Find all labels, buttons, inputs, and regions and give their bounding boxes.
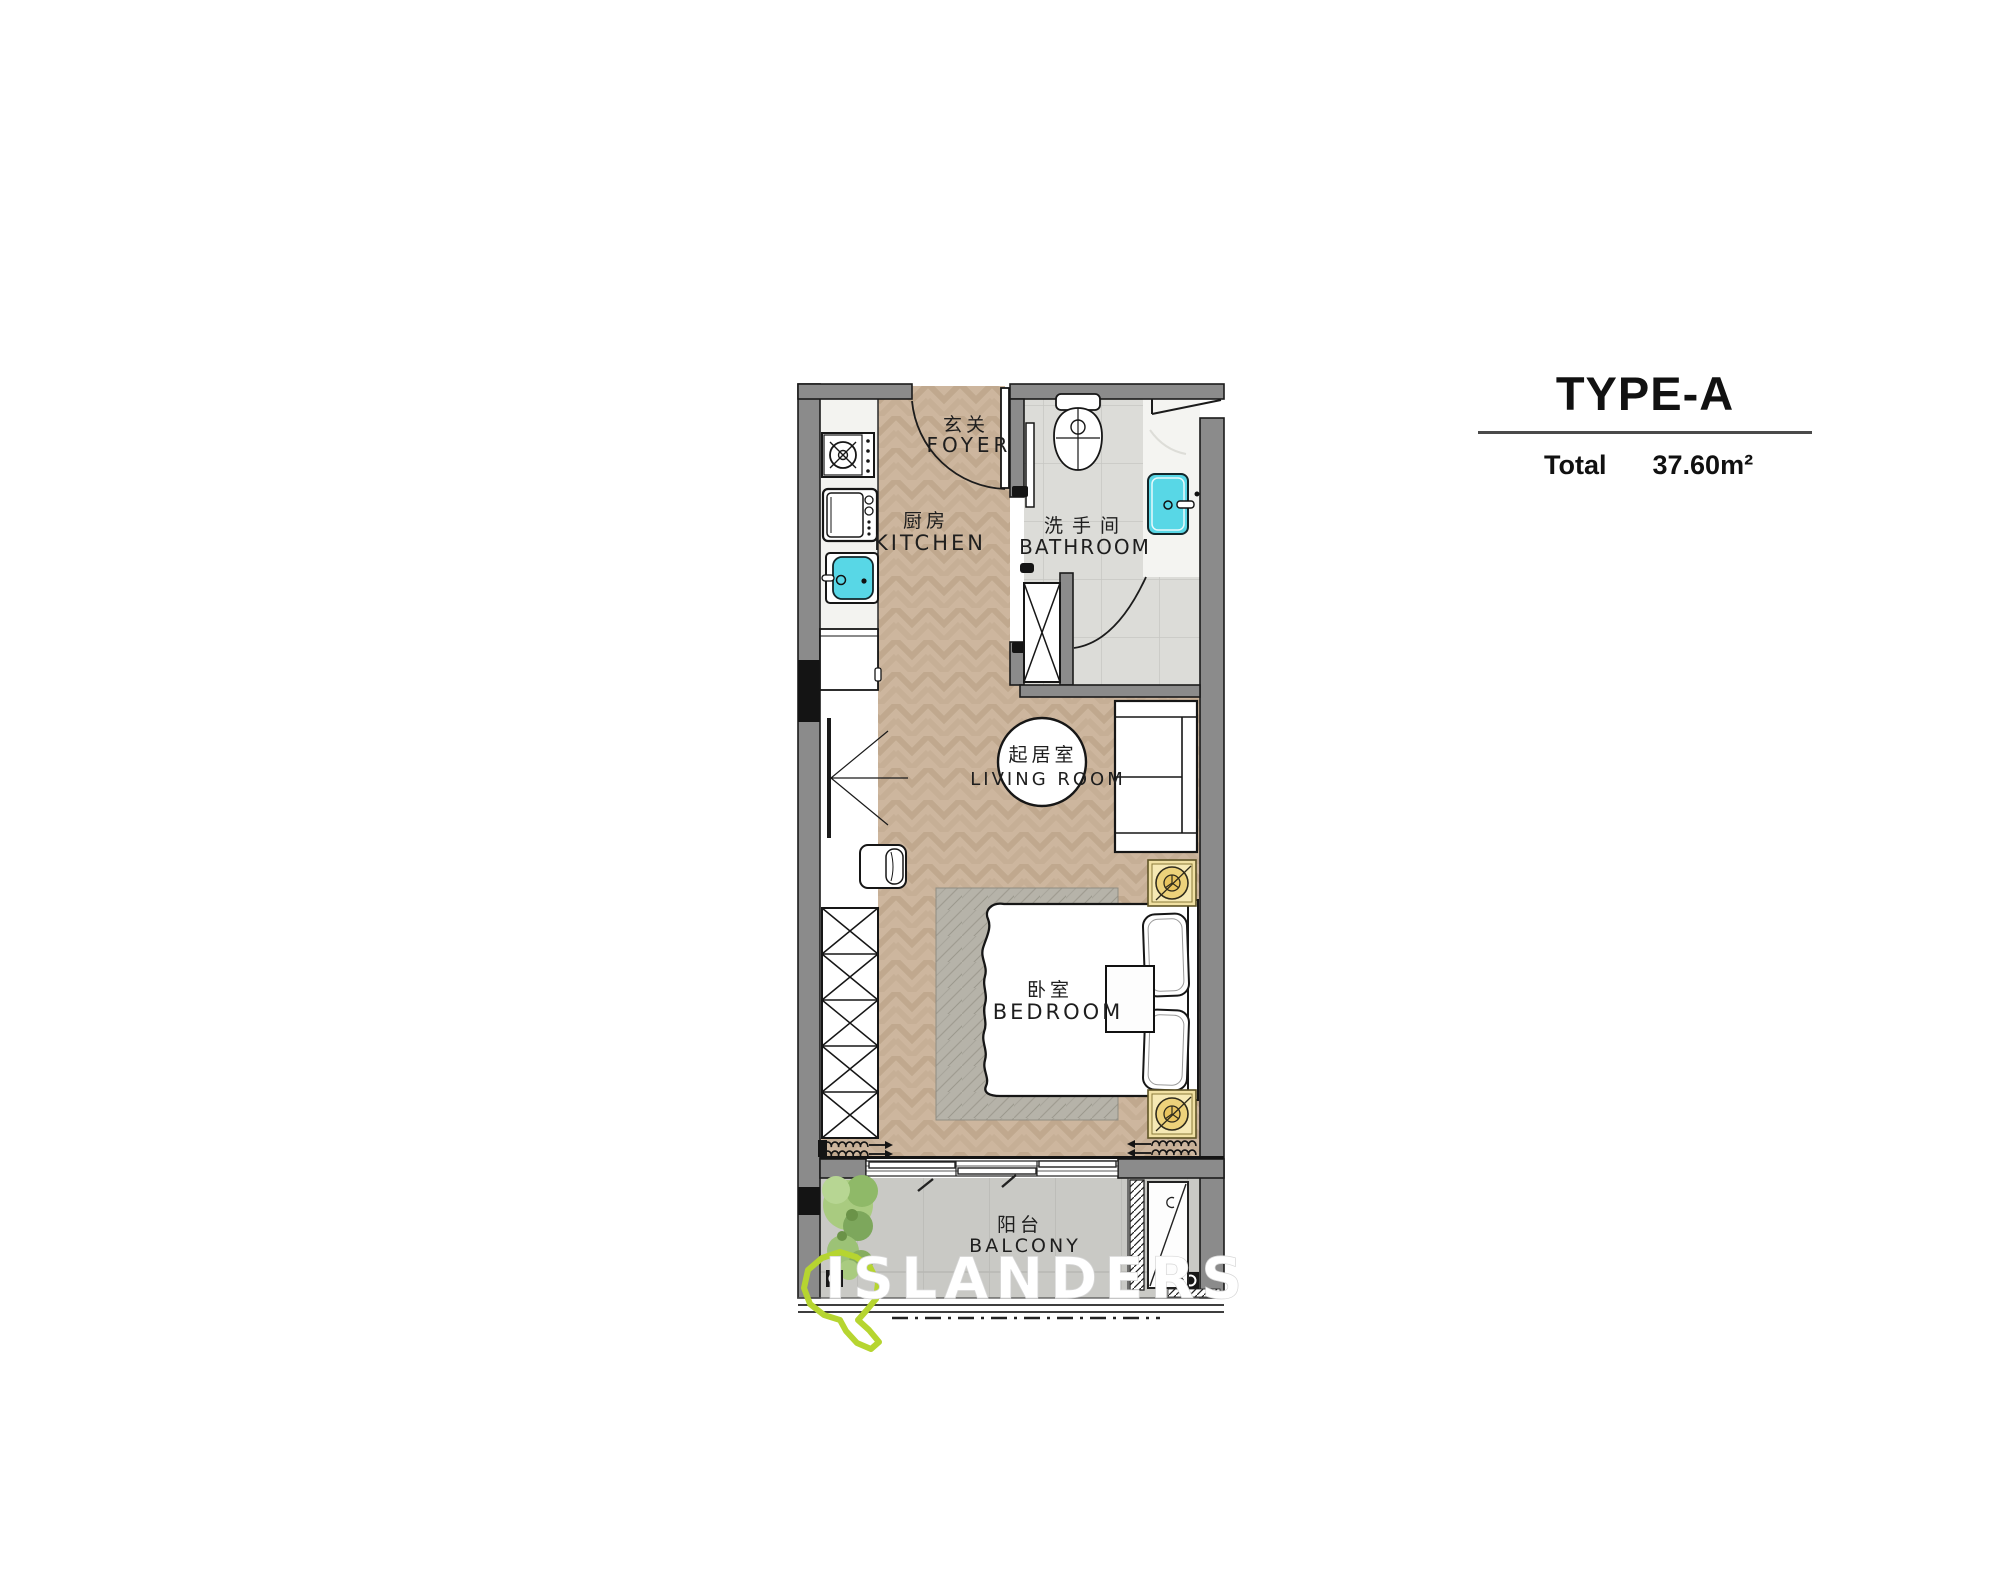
nightstand-lamp-icon [1148, 860, 1196, 906]
kitchen-label-zh: 厨房 [903, 510, 949, 532]
living-room-label-zh: 起居室 [1008, 744, 1077, 766]
top-wall-right [1010, 384, 1224, 399]
floorplan-drawing: 玄关 FOYER 厨房 KITCHEN 洗手间 BATHROOM 起居室 LIV… [0, 0, 2000, 1569]
bathroom-south-wall [1020, 685, 1200, 697]
stove-icon [822, 433, 874, 477]
bathroom-inner-wall [1060, 573, 1073, 685]
door-panel [869, 1162, 955, 1168]
top-wall-left [798, 384, 912, 399]
divider-wall-right [1118, 1159, 1224, 1178]
foyer-label-en: FOYER [927, 433, 1012, 457]
toilet-icon [1054, 394, 1102, 470]
bathroom-west-wall-upper [1010, 399, 1024, 497]
bedroom-label-zh: 卧室 [1027, 979, 1073, 1001]
kitchen-label-en: KITCHEN [874, 531, 986, 555]
door-stop-upper [1012, 486, 1028, 497]
left-wall [798, 384, 820, 1298]
divider-wall-left [820, 1159, 866, 1178]
door-panel [1039, 1161, 1116, 1167]
base-cabinet [820, 629, 881, 690]
oven-icon [823, 489, 877, 541]
headboard [1188, 900, 1198, 1100]
floorplan-page: TYPE-A Total 37.60m² [0, 0, 2000, 1569]
balcony-label-zh: 阳台 [997, 1214, 1043, 1236]
bedroom-label-en: BEDROOM [993, 1000, 1124, 1024]
sofa [1115, 701, 1197, 852]
watermark-text: ISLANDERS [825, 1246, 1250, 1312]
stool [860, 845, 906, 888]
nightstand-lamp-icon [1148, 1090, 1196, 1138]
kitchen-sink-icon [822, 553, 878, 603]
cabinet-handle [875, 668, 881, 681]
wardrobe [822, 908, 878, 1138]
divider-line [820, 1156, 1224, 1159]
door-panel [958, 1168, 1036, 1174]
entry-threshold [912, 386, 1005, 400]
living-room-label-en: LIVING ROOM [970, 769, 1125, 790]
bathroom-label-en: BATHROOM [1019, 535, 1151, 559]
shaft-cap [1020, 563, 1034, 573]
column-left [798, 660, 820, 722]
column-balcony [798, 1187, 820, 1215]
bathroom-label-zh: 洗手间 [1044, 515, 1128, 537]
